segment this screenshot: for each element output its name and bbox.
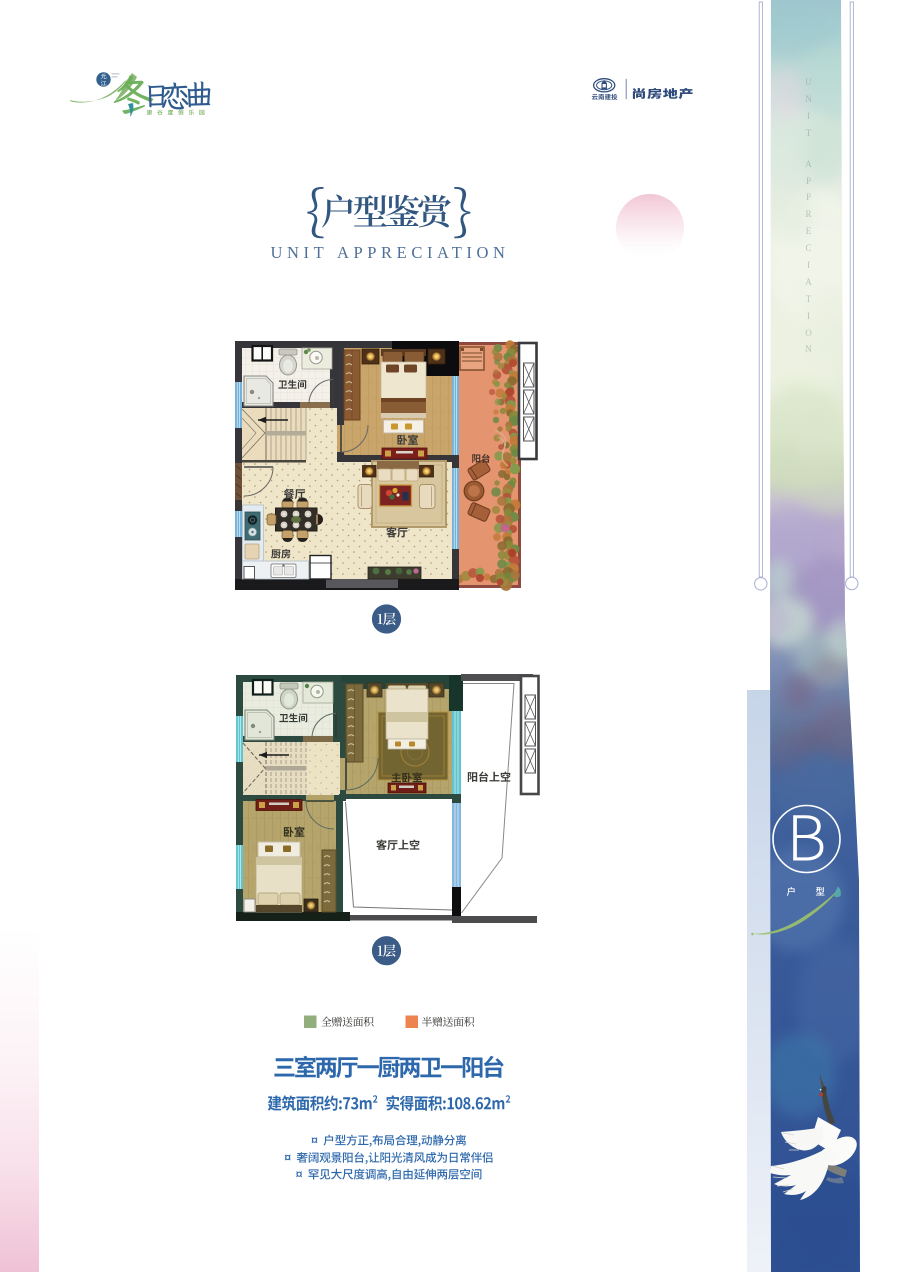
svg-text:P: P (806, 192, 811, 202)
svg-text:I: I (807, 260, 810, 270)
svg-text:T: T (806, 128, 812, 138)
svg-text:N: N (805, 344, 812, 354)
svg-text:I: I (807, 311, 810, 321)
svg-text:O: O (805, 328, 812, 338)
svg-text:I: I (807, 111, 810, 121)
svg-text:N: N (805, 94, 812, 104)
svg-text:E: E (806, 226, 812, 236)
svg-text:R: R (805, 209, 811, 219)
svg-text:T: T (806, 294, 812, 304)
svg-text:C: C (805, 243, 811, 253)
svg-text:U: U (805, 77, 812, 87)
svg-text:A: A (805, 277, 812, 287)
svg-text:P: P (806, 176, 811, 186)
svg-text:A: A (805, 159, 812, 169)
